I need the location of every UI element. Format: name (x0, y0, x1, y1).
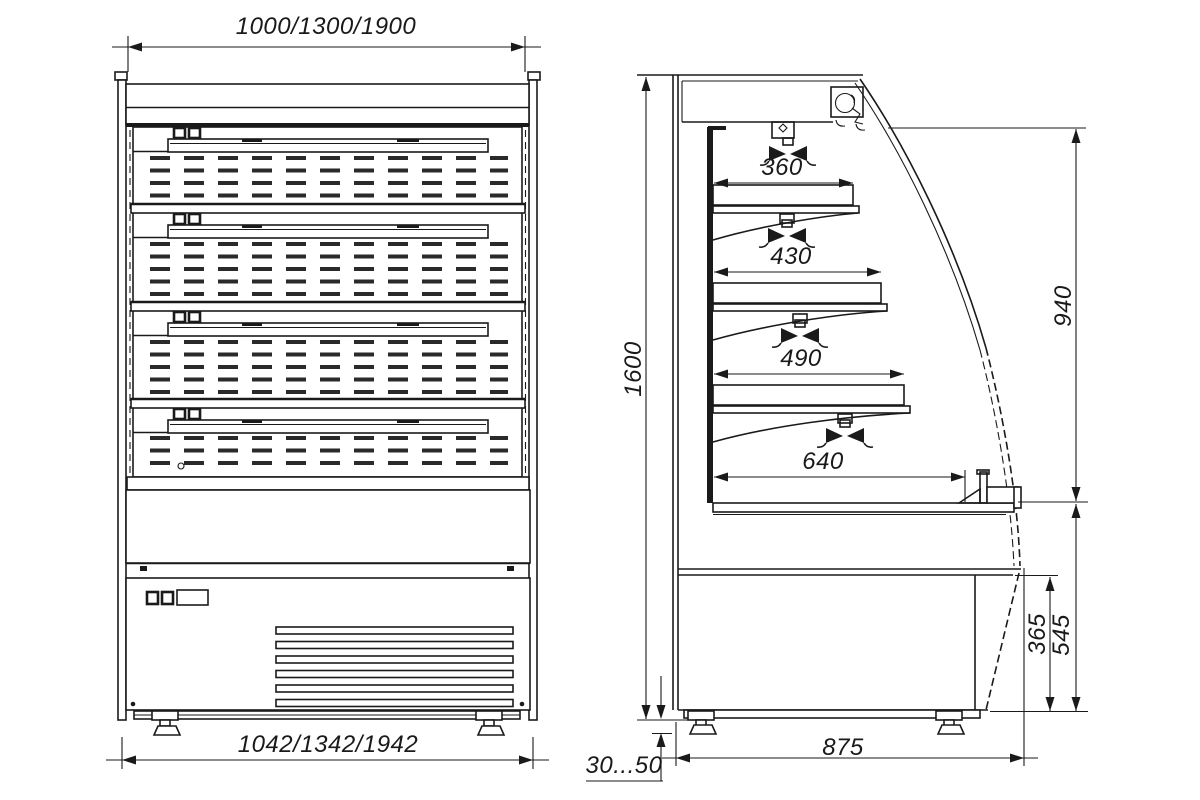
dim-label-shelf-430: 430 (751, 243, 831, 271)
front-base (126, 477, 530, 735)
dim-label-opening-940: 940 (1050, 256, 1078, 356)
light-fixture (168, 420, 488, 433)
technical-drawing: 1000/1300/1900 1042/1342/1942 1600 360 4… (0, 0, 1200, 800)
dim-label-width-bottom: 1042/1342/1942 (178, 731, 478, 759)
dim-label-width-top: 1000/1300/1900 (176, 13, 476, 41)
drawing-linework (0, 0, 1200, 800)
side-canopy (637, 75, 865, 130)
back-duct-panel (707, 127, 713, 503)
side-post (118, 80, 126, 720)
dim-label-deck-545: 545 (1048, 585, 1076, 685)
front-sill (127, 477, 529, 490)
fan-icon (817, 420, 873, 447)
adjustable-foot (152, 711, 180, 735)
adjustable-foot (688, 711, 716, 734)
shelf-section-detail (133, 128, 488, 469)
bumper-panel (126, 490, 530, 563)
post-cap (528, 72, 540, 80)
light-fixture (168, 139, 488, 152)
dim-label-height: 1600 (620, 319, 648, 419)
side-view (637, 75, 1021, 734)
post-cap (115, 72, 127, 80)
dim-label-shelf-640: 640 (783, 448, 863, 476)
dim-label-depth-875: 875 (793, 734, 893, 762)
adjustable-foot (476, 711, 504, 735)
dim-label-shelf-490: 490 (761, 345, 841, 373)
dim-label-leg-adjust: 30...50 (574, 752, 674, 780)
front-canopy (126, 84, 529, 127)
light-fixture (168, 225, 488, 238)
adjustable-foot (936, 711, 964, 734)
machine-compartment (126, 578, 530, 710)
dim-label-shelf-360: 360 (742, 154, 822, 182)
shelf-profiles (713, 185, 910, 442)
light-fixture (168, 323, 488, 336)
side-base (678, 569, 1021, 734)
front-view (115, 72, 540, 735)
